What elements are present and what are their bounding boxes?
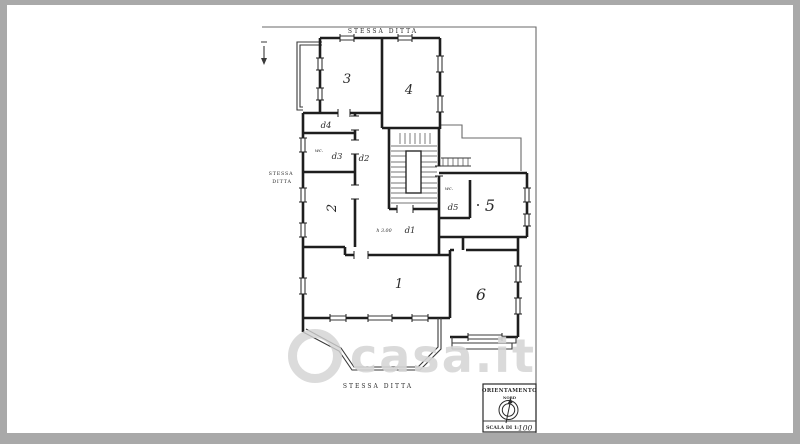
bay-window [303,318,441,370]
scale-label: SCALA DI 1: [486,425,519,431]
label-room-1: 1 [395,277,403,292]
label-wc-left: wc. [315,149,324,154]
label-room-3: 3 [343,72,351,87]
label-ceiling-height: h 3.00 [376,228,391,234]
label-corridor-d2: d2 [359,154,370,164]
label-room-2: 2 [325,204,340,213]
survey-mark [261,42,267,65]
orientation-box: ORIENTAMENTO NORD SCALA DI 1: 100 [482,384,537,433]
room5-dot [477,204,479,206]
entrance-steps [441,158,471,166]
site-label-left-1: STESSA [269,171,294,177]
label-hall-d1: d1 [405,226,416,236]
label-room-d3: d3 [332,152,343,162]
site-label-top: STESSA DITTA [348,28,418,35]
label-room-6: 6 [476,285,486,304]
label-wc-right: wc. [445,187,454,192]
compass-icon [499,398,518,423]
screenshot-root: STESSA DITTA STESSA DITTA STESSA DITTA 3… [0,0,800,444]
label-room-5: 5 [485,196,495,215]
site-boundary-lines [262,27,536,433]
site-label-left-2: DITTA [272,179,291,185]
stair-newel [406,151,421,193]
scale-value: 100 [518,424,533,433]
label-room-4: 4 [404,83,413,98]
label-room-d5: d5 [448,203,459,213]
north-label: NORD [503,395,517,400]
orientation-title: ORIENTAMENTO [482,388,537,394]
label-room-d4: d4 [321,121,332,131]
floorplan-drawing: STESSA DITTA STESSA DITTA STESSA DITTA 3… [0,0,800,444]
staircase [391,133,437,203]
site-label-bottom: STESSA DITTA [343,383,413,390]
